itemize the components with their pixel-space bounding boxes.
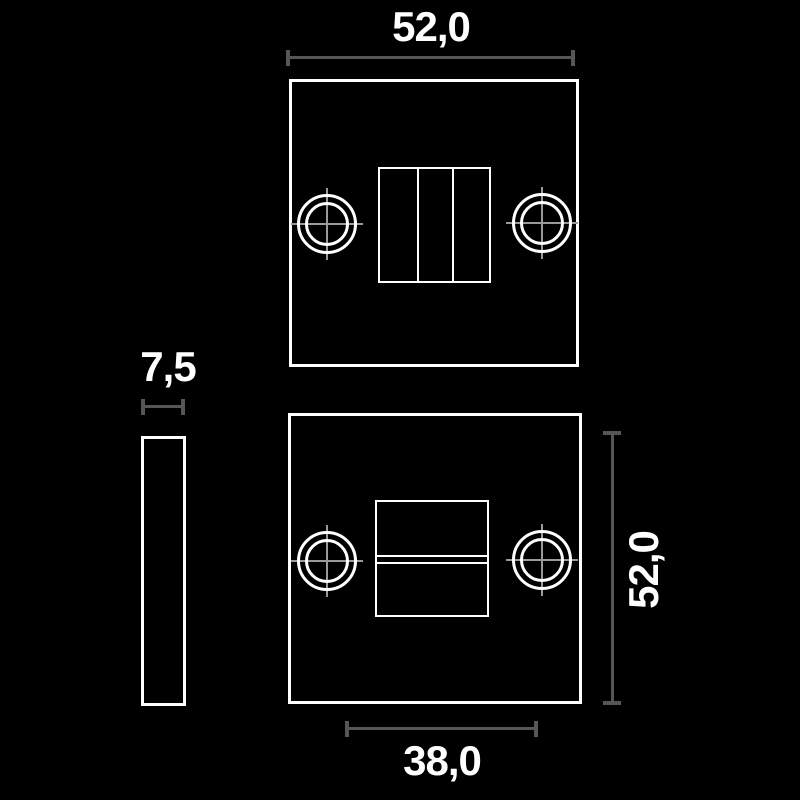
dimension-label-inner-width: 38,0 [342,740,542,782]
dimension-tick-right [181,399,185,415]
dimension-tick-right [534,721,538,737]
rocker-divider-right [452,169,454,281]
dimension-label-top-width: 52,0 [331,6,531,48]
dimension-tick-left [345,721,349,737]
screw-hole-inner-ring [305,202,349,246]
dimension-tick-right [571,50,575,66]
dimension-line-top-width [288,56,575,59]
rocker-divider-left [417,169,419,281]
dimension-line-thickness [143,405,185,408]
screw-hole-bottom-right [506,524,578,596]
dimension-tick-left [141,399,145,415]
dimension-line-height [611,433,614,705]
rocker-seam-upper [377,555,487,557]
screw-hole-bottom-left [291,525,363,597]
dimension-tick-left [286,50,290,66]
dimension-line-inner-width [347,727,538,730]
rocker-switch-front [378,167,491,283]
technical-drawing-canvas: 52,0 7,5 [0,0,800,800]
dimension-label-thickness: 7,5 [118,346,218,388]
rocker-seam-lower [377,562,487,564]
rocker-switch-front-bottom [375,500,489,617]
dimension-tick-bottom [603,701,621,705]
screw-hole-top-left [291,188,363,260]
dimension-tick-top [603,431,621,435]
screw-hole-inner-ring [520,201,564,245]
side-profile-plate [141,436,186,706]
screw-hole-inner-ring [305,539,349,583]
screw-hole-top-right [506,187,578,259]
screw-hole-inner-ring [520,538,564,582]
dimension-label-height: 52,0 [623,470,665,670]
